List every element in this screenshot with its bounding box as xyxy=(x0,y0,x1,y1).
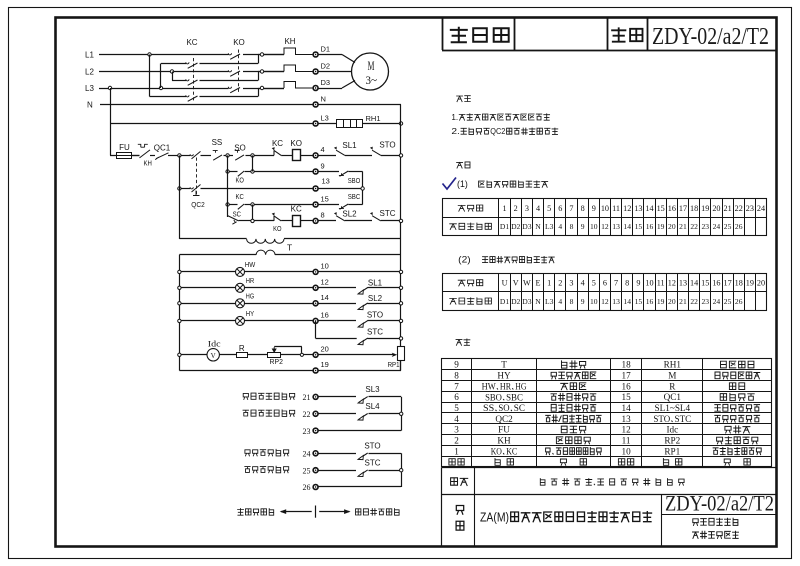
svg-text:19: 19 xyxy=(657,222,665,231)
svg-text:11: 11 xyxy=(657,279,665,288)
svg-text:7: 7 xyxy=(454,381,459,391)
svg-text:9: 9 xyxy=(321,161,325,170)
svg-text:1: 1 xyxy=(454,446,459,456)
svg-text:STO: STO xyxy=(364,441,380,450)
svg-text:15: 15 xyxy=(635,297,643,306)
svg-text:4: 4 xyxy=(558,222,562,231)
svg-text:10: 10 xyxy=(590,297,598,306)
svg-text:21: 21 xyxy=(679,297,687,306)
svg-text:D3: D3 xyxy=(522,222,531,231)
svg-text:T: T xyxy=(287,243,292,253)
svg-text:26: 26 xyxy=(735,222,743,231)
svg-text:23: 23 xyxy=(701,297,709,306)
svg-text:5: 5 xyxy=(454,403,459,413)
svg-text:ZA(M): ZA(M) xyxy=(480,509,509,524)
svg-text:20: 20 xyxy=(668,222,676,231)
svg-text:SBO: SBO xyxy=(348,177,361,185)
svg-text:8: 8 xyxy=(581,204,585,213)
svg-text:KH: KH xyxy=(497,435,511,445)
svg-text:V: V xyxy=(513,279,519,288)
svg-text:22: 22 xyxy=(303,410,311,419)
svg-text:(2): (2) xyxy=(458,255,471,265)
svg-text:14: 14 xyxy=(645,204,653,213)
svg-text:10: 10 xyxy=(601,204,609,213)
svg-text:SS: SS xyxy=(212,138,223,147)
svg-text:KO: KO xyxy=(290,139,302,148)
svg-text:FU: FU xyxy=(119,143,130,152)
svg-text:18: 18 xyxy=(622,360,632,370)
svg-text:D3: D3 xyxy=(321,78,331,87)
svg-text:22: 22 xyxy=(690,297,698,306)
svg-text:RP2: RP2 xyxy=(270,357,283,366)
svg-text:19: 19 xyxy=(701,204,709,213)
svg-text:1: 1 xyxy=(547,279,551,288)
svg-text:25: 25 xyxy=(303,466,311,475)
svg-text:HR: HR xyxy=(500,383,512,393)
svg-text:L3: L3 xyxy=(85,84,94,93)
svg-text:17: 17 xyxy=(622,371,632,381)
svg-text:D3: D3 xyxy=(522,297,531,306)
svg-text:13: 13 xyxy=(679,279,687,288)
svg-text:16: 16 xyxy=(622,381,632,391)
svg-text:9: 9 xyxy=(581,222,585,231)
svg-text:14: 14 xyxy=(321,293,329,302)
svg-text:HW: HW xyxy=(482,383,496,393)
svg-text:20: 20 xyxy=(321,345,329,354)
svg-text:QC2: QC2 xyxy=(495,414,513,424)
svg-text:E: E xyxy=(536,279,541,288)
svg-text:R: R xyxy=(239,344,245,353)
svg-text:4: 4 xyxy=(321,145,325,154)
svg-text:9: 9 xyxy=(636,279,640,288)
svg-text:QC2: QC2 xyxy=(490,126,505,136)
svg-text:11: 11 xyxy=(612,204,620,213)
svg-text:12: 12 xyxy=(668,279,676,288)
svg-text:QC2: QC2 xyxy=(191,200,204,209)
svg-text:7: 7 xyxy=(614,279,618,288)
svg-text:16: 16 xyxy=(646,222,654,231)
svg-text:19: 19 xyxy=(657,297,665,306)
svg-text:15: 15 xyxy=(701,279,709,288)
svg-text:8: 8 xyxy=(454,371,459,381)
svg-text:17: 17 xyxy=(679,204,687,213)
svg-text:14: 14 xyxy=(623,297,631,306)
svg-text:RP2: RP2 xyxy=(664,435,680,445)
svg-text:12: 12 xyxy=(601,297,609,306)
svg-text:HR: HR xyxy=(246,277,254,285)
svg-text:SL3: SL3 xyxy=(365,385,380,394)
svg-text:D2: D2 xyxy=(321,62,331,71)
svg-text:13: 13 xyxy=(612,297,620,306)
svg-text:3: 3 xyxy=(525,204,529,213)
svg-text:N: N xyxy=(535,297,541,306)
svg-text:N: N xyxy=(321,95,326,104)
svg-text:/: / xyxy=(558,414,562,425)
svg-text:M: M xyxy=(668,371,676,381)
svg-text:D2: D2 xyxy=(511,297,520,306)
svg-text:8: 8 xyxy=(625,279,629,288)
svg-text:SO: SO xyxy=(498,404,509,414)
svg-text:QC1: QC1 xyxy=(664,392,682,402)
svg-text:21: 21 xyxy=(303,393,311,402)
svg-text:RP1: RP1 xyxy=(664,446,680,456)
svg-text:L2: L2 xyxy=(85,68,94,77)
svg-text:STO: STO xyxy=(653,415,670,425)
svg-text:26: 26 xyxy=(303,483,311,492)
svg-text:21: 21 xyxy=(679,222,687,231)
svg-text:SO: SO xyxy=(234,144,246,153)
svg-text:16: 16 xyxy=(321,311,329,320)
svg-text:25: 25 xyxy=(724,297,732,306)
svg-text:7: 7 xyxy=(569,204,573,213)
svg-text:KC: KC xyxy=(186,38,197,47)
svg-text:L3: L3 xyxy=(545,297,554,306)
svg-text:16: 16 xyxy=(646,297,654,306)
svg-text:8: 8 xyxy=(570,222,574,231)
svg-text:SL2: SL2 xyxy=(342,210,357,219)
svg-text:KC: KC xyxy=(291,205,302,214)
svg-text:L3: L3 xyxy=(545,222,554,231)
svg-text:11: 11 xyxy=(622,435,631,445)
svg-text:10: 10 xyxy=(622,446,632,456)
svg-text:14: 14 xyxy=(623,222,631,231)
svg-text:SC: SC xyxy=(233,211,241,219)
svg-text:18: 18 xyxy=(690,204,698,213)
svg-text:24: 24 xyxy=(713,222,721,231)
svg-text:6: 6 xyxy=(454,392,459,402)
svg-text:9: 9 xyxy=(581,297,585,306)
svg-text:4: 4 xyxy=(558,297,562,306)
svg-text:18: 18 xyxy=(735,279,743,288)
svg-text:ZDY-02/a2/T2: ZDY-02/a2/T2 xyxy=(652,24,769,50)
svg-text:3: 3 xyxy=(454,425,459,435)
svg-text:L3: L3 xyxy=(321,114,329,123)
svg-text:23: 23 xyxy=(746,204,754,213)
svg-text:3: 3 xyxy=(569,279,573,288)
svg-text:12: 12 xyxy=(623,204,631,213)
svg-text:20: 20 xyxy=(712,204,720,213)
svg-text:SBC: SBC xyxy=(506,393,523,403)
svg-text:19: 19 xyxy=(746,279,754,288)
svg-text:D1: D1 xyxy=(500,297,509,306)
svg-text:D1: D1 xyxy=(321,45,331,54)
svg-text:KO: KO xyxy=(273,225,282,233)
svg-text:SL1: SL1 xyxy=(342,141,357,150)
svg-text:14: 14 xyxy=(690,279,698,288)
svg-text:M: M xyxy=(368,58,375,73)
svg-text:SC: SC xyxy=(514,404,525,414)
svg-text:HY: HY xyxy=(497,371,511,381)
svg-text:1: 1 xyxy=(503,204,507,213)
svg-text:KC: KC xyxy=(272,139,283,148)
svg-text:ZDY-02/a2/T2: ZDY-02/a2/T2 xyxy=(665,491,774,516)
svg-text:4: 4 xyxy=(536,204,540,213)
svg-text:13: 13 xyxy=(622,414,632,424)
svg-text:9: 9 xyxy=(592,204,596,213)
svg-text:SL1~SL4: SL1~SL4 xyxy=(655,403,691,413)
svg-text:22: 22 xyxy=(690,222,698,231)
svg-text:13: 13 xyxy=(634,204,642,213)
svg-text:Idc: Idc xyxy=(666,425,678,435)
svg-text:4: 4 xyxy=(581,279,585,288)
svg-text:RH1: RH1 xyxy=(664,360,682,370)
svg-text:9: 9 xyxy=(454,360,459,370)
svg-text:SBO: SBO xyxy=(485,393,502,403)
svg-text:D2: D2 xyxy=(511,222,520,231)
svg-text:10: 10 xyxy=(645,279,653,288)
svg-text:KO: KO xyxy=(491,447,502,457)
svg-text:STO: STO xyxy=(367,310,383,319)
svg-text:23: 23 xyxy=(701,222,709,231)
svg-text:N: N xyxy=(87,101,93,110)
svg-text:2: 2 xyxy=(454,435,459,445)
svg-text:STO: STO xyxy=(379,141,395,150)
svg-text:3~: 3~ xyxy=(366,75,378,87)
svg-text:21: 21 xyxy=(723,204,731,213)
svg-text:24: 24 xyxy=(757,204,765,213)
svg-text:D1: D1 xyxy=(500,222,509,231)
svg-text:SS: SS xyxy=(483,404,494,414)
svg-text:SBC: SBC xyxy=(348,193,361,201)
svg-text:KC: KC xyxy=(506,447,517,457)
svg-text:10: 10 xyxy=(321,262,329,271)
svg-text:HW: HW xyxy=(245,261,256,269)
svg-text:W: W xyxy=(523,279,531,288)
svg-text:RP1: RP1 xyxy=(388,360,400,369)
svg-text:15: 15 xyxy=(622,392,632,402)
svg-text:20: 20 xyxy=(757,279,765,288)
svg-text:KO: KO xyxy=(233,38,245,47)
svg-text:8: 8 xyxy=(321,210,325,219)
svg-text:16: 16 xyxy=(668,204,676,213)
svg-text:25: 25 xyxy=(724,222,732,231)
svg-text:2.: 2. xyxy=(451,126,460,136)
svg-text:16: 16 xyxy=(712,279,720,288)
svg-text:FU: FU xyxy=(498,425,510,435)
svg-text:QC1: QC1 xyxy=(154,144,171,153)
svg-text:KO: KO xyxy=(236,177,245,185)
svg-text:10: 10 xyxy=(590,222,598,231)
svg-text:19: 19 xyxy=(321,360,329,369)
svg-text:23: 23 xyxy=(303,427,311,436)
svg-text:24: 24 xyxy=(303,450,311,459)
svg-text:R: R xyxy=(669,381,676,391)
svg-text:SL1: SL1 xyxy=(368,278,383,287)
svg-text:17: 17 xyxy=(723,279,731,288)
svg-text:STC: STC xyxy=(367,327,383,336)
svg-text:24: 24 xyxy=(713,297,721,306)
svg-text:15: 15 xyxy=(657,204,665,213)
svg-text:15: 15 xyxy=(321,194,329,203)
svg-text:2: 2 xyxy=(558,279,562,288)
svg-text:6: 6 xyxy=(558,204,562,213)
svg-text:12: 12 xyxy=(601,222,609,231)
svg-text:26: 26 xyxy=(735,297,743,306)
svg-text:5: 5 xyxy=(592,279,596,288)
svg-text:KC: KC xyxy=(236,193,244,201)
svg-text:20: 20 xyxy=(668,297,676,306)
svg-text:STC: STC xyxy=(365,458,381,467)
svg-text:12: 12 xyxy=(321,278,329,287)
svg-text:(1): (1) xyxy=(457,179,468,189)
svg-text:V: V xyxy=(211,352,216,360)
svg-text:15: 15 xyxy=(635,222,643,231)
svg-text:4: 4 xyxy=(454,414,459,424)
svg-text:13: 13 xyxy=(322,176,330,185)
svg-text:8: 8 xyxy=(570,297,574,306)
svg-text:6: 6 xyxy=(603,279,607,288)
svg-text:1.: 1. xyxy=(451,112,458,122)
svg-text:STC: STC xyxy=(380,209,396,218)
svg-text:HG: HG xyxy=(246,293,254,301)
svg-text:STC: STC xyxy=(675,415,692,425)
svg-text:12: 12 xyxy=(622,425,632,435)
svg-text:Idc: Idc xyxy=(208,340,221,349)
svg-text:13: 13 xyxy=(612,222,620,231)
svg-text:N: N xyxy=(535,222,541,231)
svg-text:KH: KH xyxy=(284,37,295,46)
svg-text:U: U xyxy=(502,279,508,288)
svg-text:SL2: SL2 xyxy=(368,294,383,303)
svg-text:HY: HY xyxy=(246,310,255,318)
svg-text:RH1: RH1 xyxy=(366,114,381,123)
svg-text:T: T xyxy=(501,360,507,370)
svg-text:5: 5 xyxy=(547,204,551,213)
svg-text:L1: L1 xyxy=(85,51,94,60)
svg-text:SL4: SL4 xyxy=(365,402,380,411)
svg-text:HG: HG xyxy=(515,383,526,393)
svg-text:2: 2 xyxy=(514,204,518,213)
svg-text:22: 22 xyxy=(735,204,743,213)
svg-text:14: 14 xyxy=(622,403,632,413)
svg-text:KH: KH xyxy=(144,159,152,167)
